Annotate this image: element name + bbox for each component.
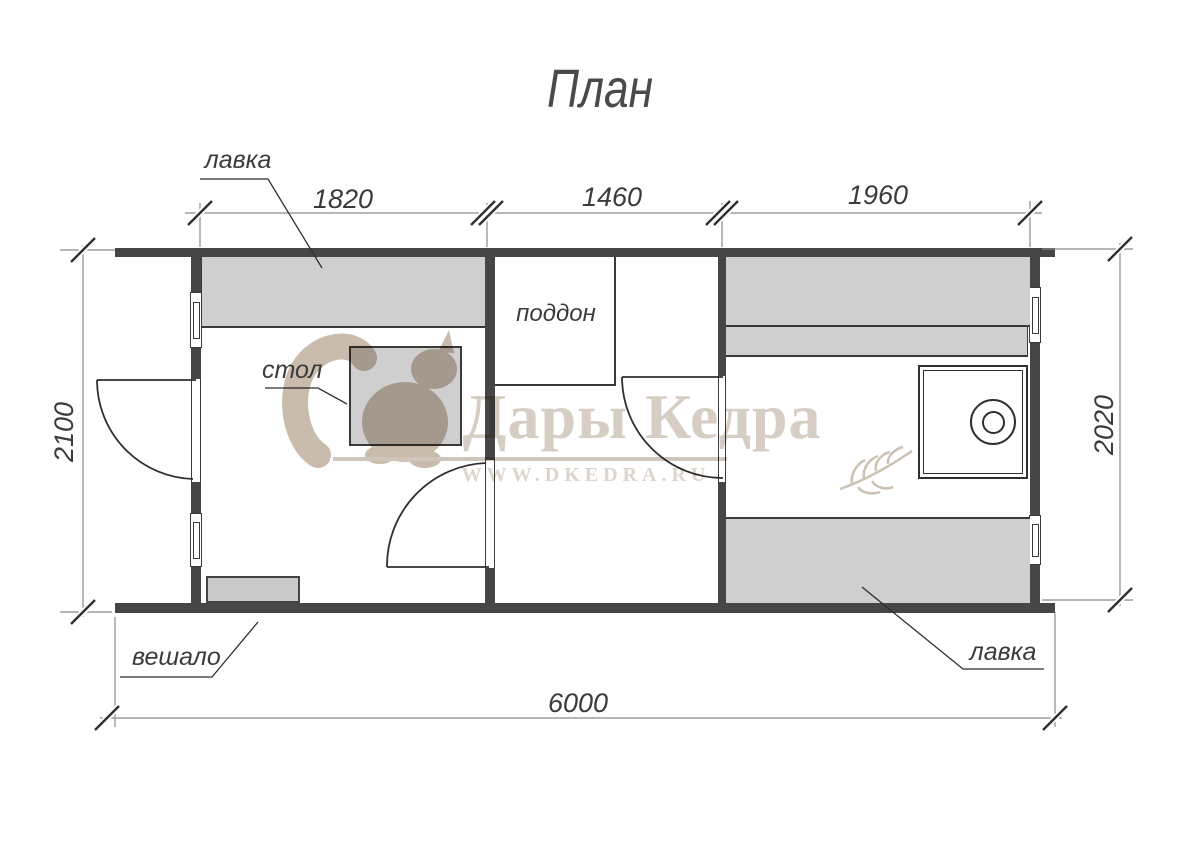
room1-door-arc xyxy=(387,463,486,567)
dimension-1460: 1460 xyxy=(552,182,672,213)
door-symbols xyxy=(97,377,723,567)
leader-lines xyxy=(120,179,1044,677)
linework-layer xyxy=(0,0,1200,848)
room2-door-arc xyxy=(622,377,723,478)
dimension-6000: 6000 xyxy=(498,688,658,719)
bench-top-label: лавка xyxy=(198,146,278,175)
dimension-1960: 1960 xyxy=(818,180,938,211)
floor-plan-canvas: Дары Кедра WWW.DKEDRA.RU План лавка стол… xyxy=(0,0,1200,848)
plan-title: План xyxy=(481,58,719,120)
dimension-1820: 1820 xyxy=(283,184,403,215)
dimension-2100: 2100 xyxy=(49,382,79,482)
entry-door-arc xyxy=(97,380,193,479)
shower-tray-label: поддон xyxy=(497,300,615,328)
table-leader xyxy=(265,388,347,404)
table-label: стол xyxy=(262,356,323,385)
bench-bottom-label: лавка xyxy=(958,638,1048,667)
dimension-2020: 2020 xyxy=(1089,375,1119,475)
hanger-label: вешало xyxy=(132,643,221,672)
